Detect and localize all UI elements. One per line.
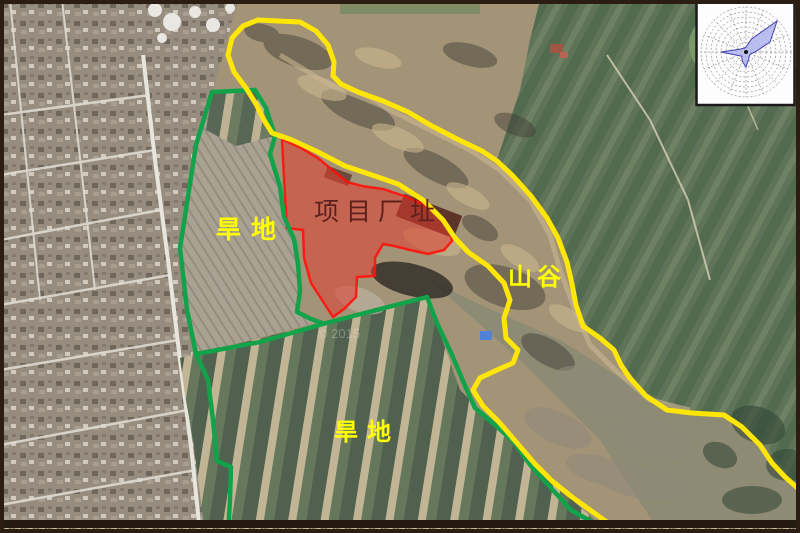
map-canvas: © 2015 [0,0,800,533]
red-roof-building [550,44,563,53]
valley-label: 山谷 [508,266,566,290]
project-site-label: 项目厂址 [314,200,442,225]
satellite-site-map: © 2015 项目厂址 旱地 山谷 旱地 [0,0,800,533]
watermark: © 2015 [318,326,360,341]
terrain-background [0,0,800,533]
dryland-label-lower: 旱地 [334,421,400,445]
wind-rose-inset [697,2,795,105]
blue-roof-building [480,331,492,340]
bottom-border [0,520,800,528]
red-roof-building-2 [560,52,568,58]
dryland-label-upper: 旱地 [216,218,286,243]
